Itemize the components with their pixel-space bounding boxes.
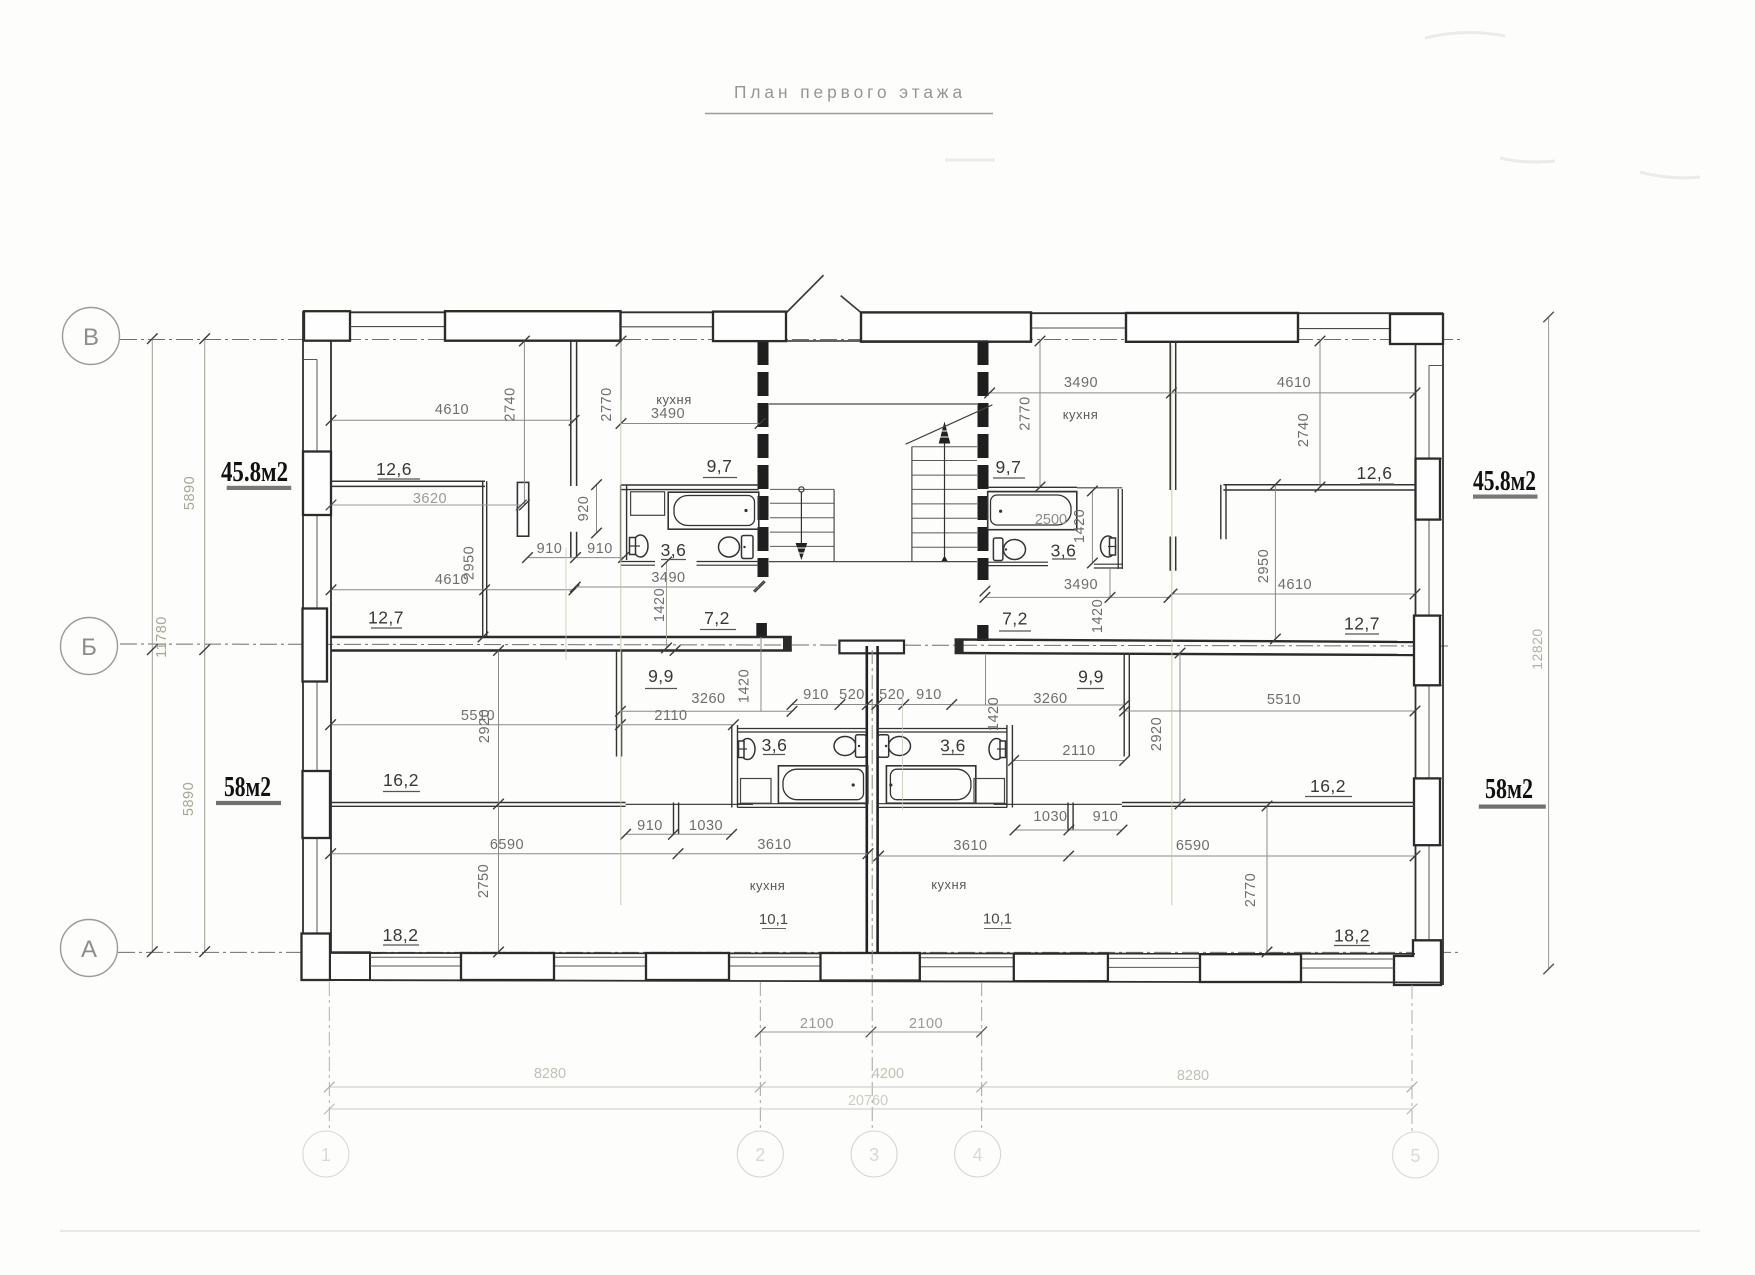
svg-text:12,6: 12,6 <box>1356 463 1392 483</box>
svg-text:9,7: 9,7 <box>995 457 1021 477</box>
svg-text:10,1: 10,1 <box>759 911 788 928</box>
svg-text:910: 910 <box>537 541 563 557</box>
svg-text:2920: 2920 <box>1149 717 1165 751</box>
svg-text:16,2: 16,2 <box>383 770 419 790</box>
svg-text:3490: 3490 <box>651 406 685 422</box>
svg-text:520: 520 <box>879 687 905 703</box>
svg-text:кухня: кухня <box>750 878 786 893</box>
svg-text:5: 5 <box>1410 1146 1420 1166</box>
svg-text:3,6: 3,6 <box>1051 541 1077 561</box>
svg-text:1030: 1030 <box>689 818 723 834</box>
svg-text:4610: 4610 <box>1278 577 1312 593</box>
svg-text:12,6: 12,6 <box>376 459 412 479</box>
svg-text:910: 910 <box>637 818 663 834</box>
svg-text:2920: 2920 <box>477 709 493 743</box>
svg-text:кухня: кухня <box>931 877 967 892</box>
svg-text:3: 3 <box>869 1145 879 1165</box>
svg-text:3620: 3620 <box>413 491 447 507</box>
svg-text:910: 910 <box>587 541 613 557</box>
svg-text:План первого этажа: План первого этажа <box>734 82 966 102</box>
svg-text:2110: 2110 <box>654 708 687 724</box>
svg-text:3260: 3260 <box>1033 691 1067 707</box>
svg-text:9,9: 9,9 <box>648 666 674 686</box>
svg-text:1030: 1030 <box>1033 809 1067 825</box>
svg-text:5890: 5890 <box>182 476 198 510</box>
svg-text:910: 910 <box>803 687 829 703</box>
svg-text:1420: 1420 <box>1072 509 1088 543</box>
svg-text:16,2: 16,2 <box>1310 776 1346 796</box>
svg-text:12820: 12820 <box>1529 628 1545 669</box>
svg-text:2750: 2750 <box>476 864 492 898</box>
svg-text:9,7: 9,7 <box>707 456 733 476</box>
svg-text:45.8м2: 45.8м2 <box>221 457 288 488</box>
svg-text:2110: 2110 <box>1062 743 1095 759</box>
svg-text:3,6: 3,6 <box>762 735 788 755</box>
svg-text:12,7: 12,7 <box>1344 614 1380 634</box>
svg-text:920: 920 <box>576 496 592 522</box>
svg-text:3610: 3610 <box>953 838 987 854</box>
svg-text:20760: 20760 <box>848 1093 888 1109</box>
svg-text:3490: 3490 <box>651 570 685 586</box>
svg-text:4610: 4610 <box>435 402 469 418</box>
svg-text:7,2: 7,2 <box>1002 609 1028 629</box>
svg-text:18,2: 18,2 <box>1334 926 1370 946</box>
svg-text:А: А <box>81 936 97 963</box>
svg-text:12,7: 12,7 <box>368 608 404 628</box>
svg-text:7,2: 7,2 <box>704 608 730 628</box>
svg-text:10,1: 10,1 <box>983 911 1012 928</box>
svg-text:2740: 2740 <box>503 387 519 421</box>
svg-text:6590: 6590 <box>490 837 524 853</box>
svg-text:11780: 11780 <box>154 616 170 658</box>
svg-text:5890: 5890 <box>181 782 197 816</box>
svg-text:9,9: 9,9 <box>1078 667 1104 687</box>
svg-text:3490: 3490 <box>1064 375 1098 391</box>
svg-text:3260: 3260 <box>691 691 725 707</box>
svg-text:1420: 1420 <box>652 588 668 622</box>
svg-text:520: 520 <box>839 687 865 703</box>
svg-text:2100: 2100 <box>909 1016 943 1032</box>
svg-text:кухня: кухня <box>656 392 692 407</box>
svg-text:2950: 2950 <box>1256 549 1272 583</box>
svg-text:кухня: кухня <box>1063 407 1099 422</box>
svg-text:2: 2 <box>755 1145 765 1165</box>
svg-text:2100: 2100 <box>800 1016 834 1032</box>
svg-text:6590: 6590 <box>1176 838 1210 854</box>
svg-text:910: 910 <box>916 687 942 703</box>
svg-text:Б: Б <box>81 634 97 661</box>
svg-text:3,6: 3,6 <box>940 736 966 756</box>
svg-text:2770: 2770 <box>1018 396 1034 430</box>
svg-text:18,2: 18,2 <box>382 925 418 945</box>
svg-text:3,6: 3,6 <box>661 540 687 560</box>
svg-text:3490: 3490 <box>1064 577 1098 593</box>
svg-text:3610: 3610 <box>757 837 791 853</box>
svg-text:1: 1 <box>321 1145 331 1165</box>
svg-text:8280: 8280 <box>1177 1068 1209 1084</box>
svg-text:4200: 4200 <box>872 1066 904 1082</box>
svg-text:45.8м2: 45.8м2 <box>1473 466 1536 497</box>
svg-text:5510: 5510 <box>1267 692 1301 708</box>
svg-text:910: 910 <box>1093 809 1119 825</box>
svg-text:1420: 1420 <box>986 697 1002 731</box>
svg-text:2770: 2770 <box>599 387 615 421</box>
svg-text:58м2: 58м2 <box>1485 774 1533 805</box>
svg-text:2770: 2770 <box>1243 873 1259 907</box>
svg-text:1420: 1420 <box>737 669 753 703</box>
svg-text:В: В <box>83 324 99 351</box>
svg-text:2950: 2950 <box>462 546 478 580</box>
svg-text:8280: 8280 <box>534 1066 566 1082</box>
svg-text:58м2: 58м2 <box>224 772 271 803</box>
svg-text:4610: 4610 <box>1277 375 1311 391</box>
svg-text:2740: 2740 <box>1296 413 1312 447</box>
svg-text:4: 4 <box>973 1145 983 1165</box>
svg-text:2500: 2500 <box>1035 512 1067 528</box>
svg-text:1420: 1420 <box>1090 599 1106 633</box>
